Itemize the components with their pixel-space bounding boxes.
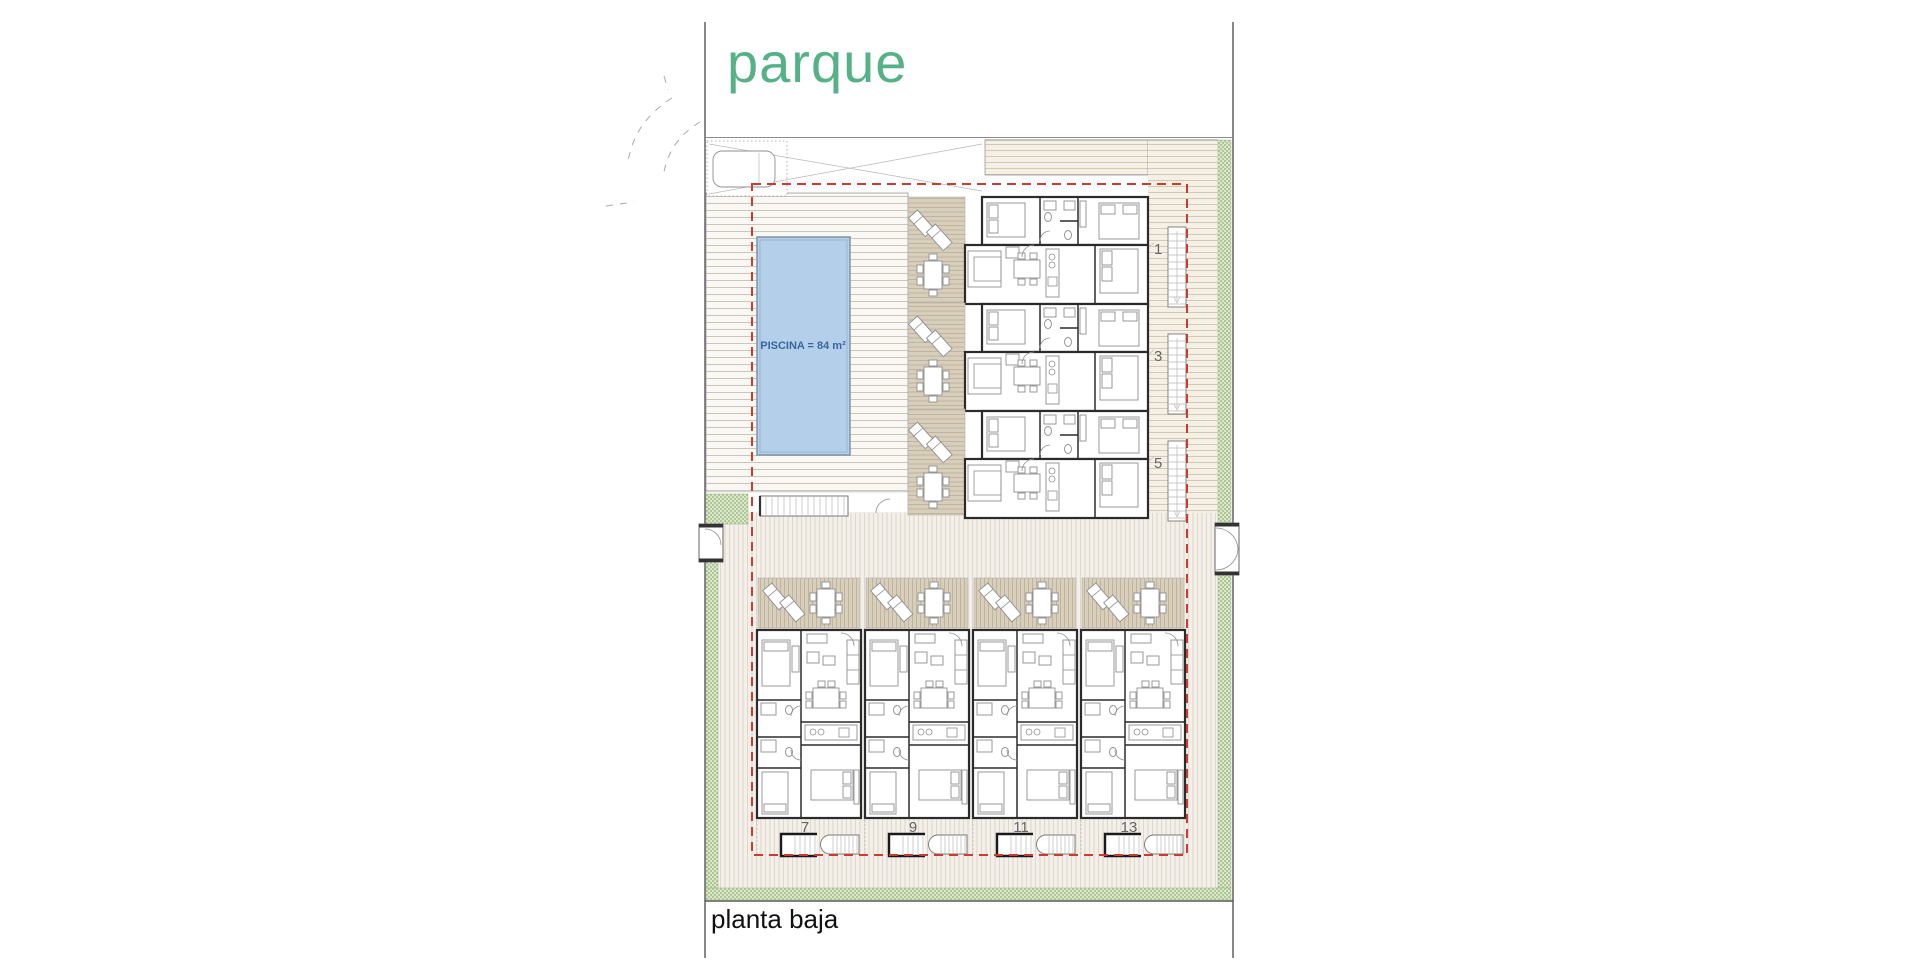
lower-unit-13: 13 [1081,578,1185,856]
upper-building-block: 135 [908,197,1186,521]
sofa-icon [1171,640,1183,684]
upper-unit-5: 5 [908,409,1186,521]
sofa-icon [968,251,1001,287]
upper-unit-3: 3 [908,303,1186,414]
dining-table-icon [1029,688,1055,708]
kitchen-counter-icon [1046,356,1059,404]
dining-table-icon [925,589,943,617]
swimming-pool: PISCINA = 84 m² [757,237,850,455]
armchair-icon [1023,652,1035,663]
sofa-icon [1063,640,1075,684]
park-label: parque [727,31,907,94]
dining-table-icon [924,367,942,395]
site-plan: PISCINA = 84 m² 135 791113 parque planta… [0,0,1920,980]
upper-unit-1: 1 [908,197,1186,307]
dining-table-icon [1014,474,1040,492]
wardrobe-icon [1080,201,1086,227]
dining-table-icon [924,261,942,289]
gate-left [699,524,723,562]
wardrobe-icon [900,646,907,672]
kitchen-counter-icon [1046,249,1059,297]
hedge-right-upper [1218,140,1231,523]
sofa-icon [955,640,967,684]
armchair-icon [915,652,927,663]
armchair-icon [1006,247,1019,258]
dining-table-icon [817,589,835,617]
car-icon [713,151,775,187]
gate-right [1215,523,1239,575]
lower-unit-9: 9 [865,578,969,856]
dining-table-icon [1014,367,1040,385]
unit-number: 5 [1154,455,1162,472]
dining-table-icon [813,688,839,708]
shelf-icon [807,634,827,643]
hedge-bottom [706,888,1231,900]
armchair-icon [807,652,819,663]
dining-table-icon [1137,688,1163,708]
armchair-icon [1131,652,1143,663]
wardrobe-icon [792,646,799,672]
sofa-icon [968,358,1001,394]
unit-number: 1 [1154,241,1162,258]
sofa-icon [847,640,859,684]
shelf-icon [915,634,935,643]
sofa-icon [968,465,1001,501]
lower-unit-11: 11 [973,578,1077,856]
dining-table-icon [924,473,942,501]
wardrobe-icon [1080,308,1086,334]
stair [1168,441,1186,521]
hedge-right-lower [1218,575,1231,888]
dining-table-icon [1033,589,1051,617]
hedge-left [706,562,718,888]
wardrobe-icon [1008,646,1015,672]
shelf-icon [1131,634,1151,643]
unit-number: 3 [1154,348,1162,365]
dining-table-icon [921,688,947,708]
dining-table-icon [1014,260,1040,278]
wardrobe-icon [1080,415,1086,441]
armchair-icon [1006,354,1019,365]
stair [1168,334,1186,414]
shelf-icon [1023,634,1043,643]
dining-table-icon [1141,589,1159,617]
kitchen-counter-icon [1046,463,1059,511]
lower-unit-7: 7 [757,578,861,856]
armchair-icon [1006,461,1019,472]
wardrobe-icon [1116,646,1123,672]
hedge-left-patch [706,494,748,524]
floor-plan-label: planta baja [711,904,839,934]
pool-area-label: PISCINA = 84 m² [760,340,846,352]
stair [1168,227,1186,307]
